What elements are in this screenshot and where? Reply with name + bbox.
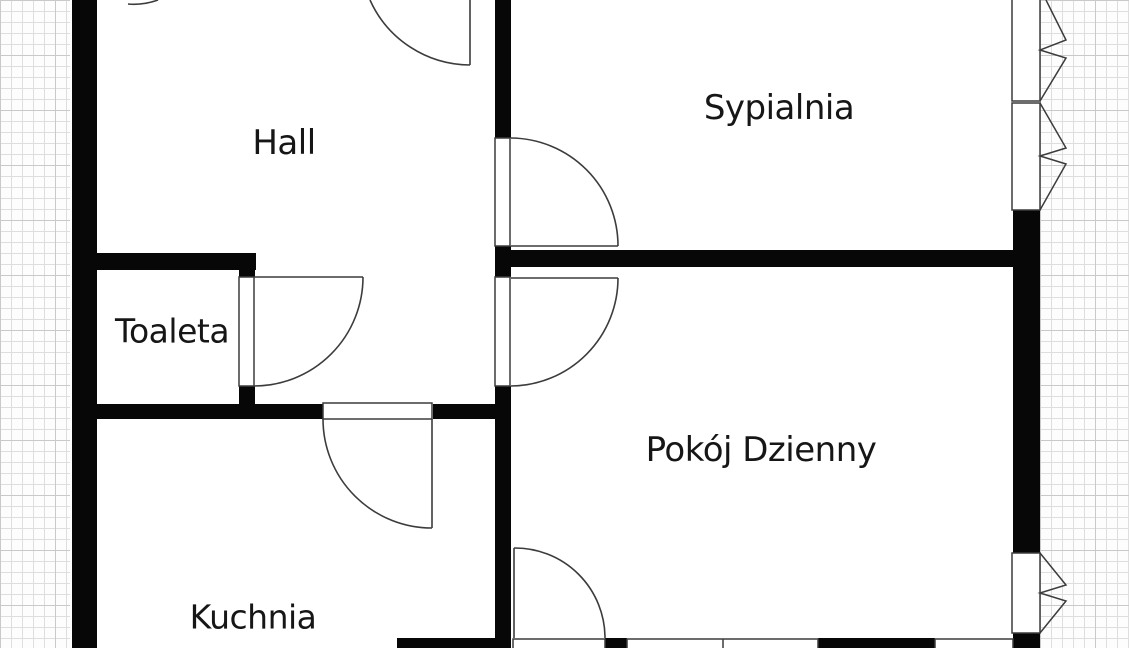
- sypialnia-window-1-frame: [1012, 0, 1040, 101]
- room-label-toaleta: Toaleta: [115, 312, 229, 351]
- room-label-pokoj-dzienny: Pokój Dzienny: [646, 430, 877, 470]
- wall-central-top: [495, 0, 511, 138]
- floor-plan: Hall Sypialnia Toaleta Pokój Dzienny Kuc…: [0, 0, 1129, 648]
- sypialnia-door-arc: [511, 138, 618, 246]
- sypialnia-door-jamb: [495, 138, 510, 246]
- toaleta-door-arc: [254, 277, 363, 386]
- wall-toaleta-right-top: [239, 253, 255, 277]
- wall-bottom-segment-2: [818, 638, 935, 648]
- upper-left-door-arc: [128, 0, 158, 4]
- balcony-door-jamb: [513, 639, 605, 648]
- wall-central-middle: [495, 246, 511, 277]
- door-jambs: [239, 138, 510, 419]
- pokoj-dzienny-door-arc: [511, 278, 618, 386]
- wall-toaleta-kuchnia-left: [72, 404, 323, 419]
- sypialnia-window-2-chevron: [1040, 103, 1066, 210]
- wall-right-bottom-corner: [1013, 633, 1040, 648]
- pokoj-window-right-frame: [1012, 553, 1040, 633]
- wall-hall-toaleta: [72, 253, 256, 270]
- wall-bottom-segment-1: [605, 638, 627, 648]
- pokoj-bottom-window-2-frame: [935, 639, 1013, 648]
- wall-toaleta-kuchnia-right: [433, 404, 495, 419]
- wall-right-outer: [1013, 210, 1040, 553]
- kuchnia-door-arc: [323, 419, 432, 528]
- room-label-hall: Hall: [252, 123, 315, 163]
- room-label-sypialnia: Sypialnia: [704, 88, 854, 128]
- entry-door-arc: [370, 0, 470, 65]
- room-label-kuchnia: Kuchnia: [190, 598, 317, 637]
- balcony-door-arc: [514, 548, 605, 638]
- pokoj-window-right-chevron: [1040, 553, 1066, 633]
- kuchnia-door-jamb: [323, 403, 432, 419]
- toaleta-door-jamb: [239, 277, 254, 386]
- wall-left-outer: [72, 0, 97, 648]
- wall-central-bottom: [495, 386, 511, 648]
- wall-bottom-kuchnia: [397, 638, 495, 648]
- wall-sypialnia-pokoj: [511, 250, 1013, 267]
- sypialnia-window-1-chevron: [1040, 0, 1066, 101]
- bottom-openings: [513, 639, 1013, 648]
- pokoj-dzienny-door-jamb: [495, 277, 510, 386]
- sypialnia-window-2-frame: [1012, 103, 1040, 210]
